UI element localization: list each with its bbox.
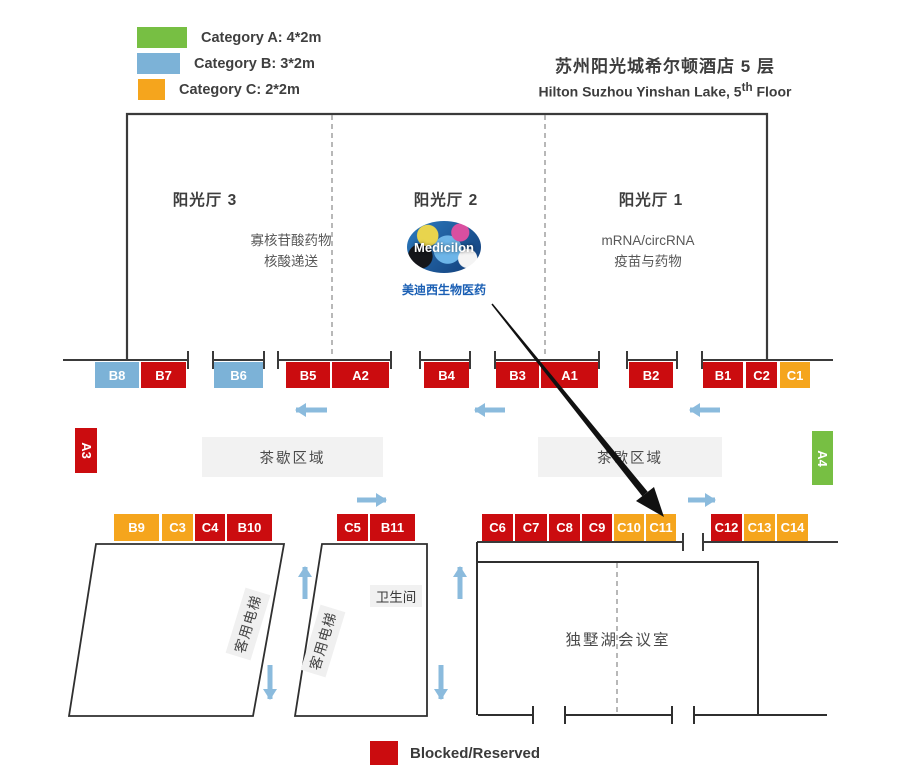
booth-b11: B11 xyxy=(370,514,415,541)
topic-hall1: mRNA/circRNA 疫苗与药物 xyxy=(578,230,718,272)
booth-c10: C10 xyxy=(614,514,644,541)
booth-c6: C6 xyxy=(482,514,513,541)
legend-row-category-c: Category C: 2*2m xyxy=(138,79,300,100)
legend-row-category-b: Category B: 3*2m xyxy=(137,53,315,74)
medicilon-logo-text: Medicilon xyxy=(414,240,474,255)
booth-c13: C13 xyxy=(744,514,775,541)
booth-a4: A4 xyxy=(812,431,833,485)
medicilon-caption: 美迪西生物医药 xyxy=(394,281,494,298)
booth-a2: A2 xyxy=(332,362,389,388)
booth-b8: B8 xyxy=(95,362,139,388)
page-title: 苏州阳光城希尔顿酒店 5 层 Hilton Suzhou Yinshan Lak… xyxy=(470,52,860,100)
tea-break-area-right: 茶歇区域 xyxy=(538,437,722,477)
booth-c14: C14 xyxy=(777,514,808,541)
hall-label-3: 阳光厅 3 xyxy=(140,188,270,210)
medicilon-logo: Medicilon xyxy=(407,221,481,273)
tea-break-area-left: 茶歇区域 xyxy=(202,437,383,477)
legend-label-blocked: Blocked/Reserved xyxy=(410,745,540,762)
booth-c8: C8 xyxy=(549,514,580,541)
booth-b6: B6 xyxy=(214,362,263,388)
legend-swatch-category-b xyxy=(137,53,180,74)
booth-b10: B10 xyxy=(227,514,272,541)
title-english: Hilton Suzhou Yinshan Lake, 5th Floor xyxy=(470,81,860,100)
hall-label-1: 阳光厅 1 xyxy=(586,188,716,210)
legend-row-category-a: Category A: 4*2m xyxy=(137,27,321,48)
floorplan-canvas: Category A: 4*2m Category B: 3*2m Catego… xyxy=(0,0,900,773)
title-chinese: 苏州阳光城希尔顿酒店 5 层 xyxy=(470,52,860,77)
booth-b2: B2 xyxy=(629,362,673,388)
meeting-room-label: 独墅湖会议室 xyxy=(478,628,758,650)
booth-b1: B1 xyxy=(703,362,743,388)
booth-b3: B3 xyxy=(496,362,539,388)
restroom-label: 卫生间 xyxy=(370,585,422,607)
legend-swatch-category-a xyxy=(137,27,187,48)
booth-c7: C7 xyxy=(515,514,547,541)
booth-b7: B7 xyxy=(141,362,186,388)
booth-b5: B5 xyxy=(286,362,330,388)
legend-swatch-blocked xyxy=(370,741,398,765)
booth-c11: C11 xyxy=(646,514,676,541)
booth-c9: C9 xyxy=(582,514,612,541)
legend-label-category-b: Category B: 3*2m xyxy=(194,56,315,72)
legend-label-category-a: Category A: 4*2m xyxy=(201,30,321,46)
booth-b4: B4 xyxy=(424,362,469,388)
legend-swatch-category-c xyxy=(138,79,165,100)
booth-a1: A1 xyxy=(541,362,598,388)
topic-hall3: 寡核苷酸药物 核酸递送 xyxy=(221,230,361,272)
booth-a3: A3 xyxy=(75,428,97,473)
booth-c2: C2 xyxy=(746,362,777,388)
booth-c4: C4 xyxy=(195,514,225,541)
booth-c12: C12 xyxy=(711,514,742,541)
booth-c5: C5 xyxy=(337,514,368,541)
booth-b9: B9 xyxy=(114,514,159,541)
bottom-wall-ticks xyxy=(683,533,703,551)
legend-row-blocked: Blocked/Reserved xyxy=(370,741,540,765)
hall-label-2: 阳光厅 2 xyxy=(381,188,511,210)
booth-c3: C3 xyxy=(162,514,193,541)
booth-c1: C1 xyxy=(780,362,810,388)
legend-label-category-c: Category C: 2*2m xyxy=(179,82,300,98)
